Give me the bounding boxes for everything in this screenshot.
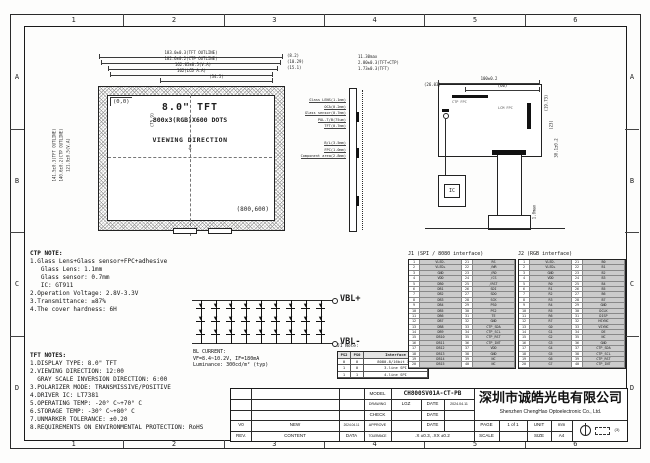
tb-content-label: CONTENT xyxy=(251,431,339,441)
rear-view-ctp-connector xyxy=(452,95,488,98)
pin-number: 20 xyxy=(519,362,530,367)
zone-band-left: ABCD xyxy=(10,26,24,439)
rear-dim-right3: 30.1±0.2 xyxy=(554,138,559,157)
side-view-connector-bump-1 xyxy=(356,112,359,122)
ctp-tail-terminal xyxy=(443,113,449,119)
note-line: 1.Glass Lens+Glass sensor+FPC+adhesive xyxy=(30,258,167,266)
led-icon: ▼ xyxy=(211,329,220,335)
side-view-extension-line xyxy=(362,90,363,230)
led-string: ▼▼▼ xyxy=(256,300,265,344)
side-layer-label: POL.T/B(75um) xyxy=(318,118,346,123)
front-dim-left: (75.9) xyxy=(150,113,155,127)
pin-name: CTP_INT xyxy=(583,362,625,367)
front-dim-left: 140.6±0.2(CTP OUTLINE) xyxy=(59,129,64,182)
led-string: ▼▼▼ xyxy=(226,300,235,344)
pin-number: 20 xyxy=(409,362,420,367)
led-icon: ▼ xyxy=(286,316,295,322)
backlight-circuit: ▼▼▼▼▼▼▼▼▼▼▼▼▼▼▼▼▼▼▼▼▼▼▼▼▼▼▼ xyxy=(192,300,338,344)
led-icon: ▼ xyxy=(286,329,295,335)
led-icon: ▼ xyxy=(241,329,250,335)
front-dim-right: (15.1) xyxy=(287,65,301,70)
side-layer-label: Glass sensor(0.7mm) xyxy=(305,111,346,116)
led-icon: ▼ xyxy=(301,316,310,322)
tb-check-label: CHECK xyxy=(364,410,391,420)
bl-current-line: Luminance: 300cd/m² (typ) xyxy=(193,362,268,369)
zone-number: 3 xyxy=(225,14,325,26)
rear-view-baseline xyxy=(425,228,565,229)
projection-symbol-icon xyxy=(580,425,591,436)
rear-dim-right1: (19.73) xyxy=(544,95,549,112)
zone-number: 6 xyxy=(526,14,625,26)
tb-date-label-2: DATE xyxy=(421,410,444,420)
led-icon: ▼ xyxy=(316,329,325,335)
zone-number: 1 xyxy=(24,14,124,26)
ctp-tail-cap xyxy=(442,109,449,112)
led-string: ▼▼▼ xyxy=(196,300,205,344)
side-layer-label: Component area(2.8mm) xyxy=(301,154,346,159)
zone-number: 1 xyxy=(24,440,124,448)
side-view-connector-bump-3 xyxy=(356,196,359,206)
led-icon: ▼ xyxy=(196,316,205,322)
tb-unit-value: mm xyxy=(551,420,572,430)
note-line: GRAY SCALE INVERSION DIRECTION: 6:00 xyxy=(30,376,203,384)
ctp-tail-wire xyxy=(445,119,446,175)
tb-size-value: A4 xyxy=(551,431,572,441)
led-icon: ▼ xyxy=(196,303,205,309)
led-icon: ▼ xyxy=(256,303,265,309)
note-line: Glass Lens: 1.1mm xyxy=(30,266,167,274)
projection-box-icon xyxy=(595,427,610,435)
note-line: 3.POLARIZER MODE: TRANSMISSIVE/POSITIVE xyxy=(30,384,203,392)
corner-coordinate-label: (800,600) xyxy=(205,206,269,213)
zone-number: 2 xyxy=(124,14,224,26)
pin-number: 40 xyxy=(462,362,473,367)
note-line: 1.DISPLAY TYPE: 8.0" TFT xyxy=(30,360,203,368)
tb-drawing-date: 2024.04.11 xyxy=(444,399,474,409)
tb-data-label: DATA xyxy=(339,431,364,441)
led-icon: ▼ xyxy=(301,303,310,309)
led-icon: ▼ xyxy=(241,316,250,322)
side-dim: 1.73±0.3(TFT) xyxy=(358,66,389,71)
note-line: 8.REQUIREMENTS ON ENVIRONMENTAL PROTECTI… xyxy=(30,424,203,432)
tb-rev-value: V0 xyxy=(231,420,251,430)
title-block: V0 NEW 2024.04.11 REV. CONTENT DATA MODE… xyxy=(230,388,628,442)
ctp-note: CTP NOTE:1.Glass Lens+Glass sensor+FPC+a… xyxy=(30,250,167,314)
side-layer-label: B/L(3.5mm) xyxy=(324,141,346,146)
zone-letter: C xyxy=(10,233,24,337)
note-line: IC: GT911 xyxy=(30,282,167,290)
led-icon: ▼ xyxy=(241,303,250,309)
zone-number: 4 xyxy=(325,14,425,26)
note-title: TFT NOTES: xyxy=(30,352,203,360)
tb-drawing-value: LGZ xyxy=(391,399,421,409)
side-layer-label: TFT(0.7mm) xyxy=(324,124,346,129)
front-view-active-area xyxy=(107,95,275,221)
tb-model-value: CH800SV01A-CT-PB xyxy=(391,389,474,399)
led-icon: ▼ xyxy=(226,316,235,322)
led-string: ▼▼▼ xyxy=(301,300,310,344)
display-size-label: 8.0" TFT xyxy=(107,102,273,113)
viewing-direction-arrow-icon: ⇩ xyxy=(107,143,273,153)
projection-label: (3) xyxy=(609,425,625,434)
tb-rev-label: REV. xyxy=(231,431,251,441)
note-line: 3.Transmittance: ≥87% xyxy=(30,298,167,306)
zone-letter: A xyxy=(10,26,24,130)
note-line: Glass sensor: 0.7mm xyxy=(30,274,167,282)
led-icon: ▼ xyxy=(301,329,310,335)
note-line: 5.OPERATING TEMP: -20° C~+70° C xyxy=(30,400,203,408)
note-line: 2.VIEWING DIRECTION: 12:00 xyxy=(30,368,203,376)
tb-rev-content-value: NEW xyxy=(251,420,339,430)
vbl-plus-terminal xyxy=(332,298,338,304)
tb-unit-label: UNIT xyxy=(527,420,551,430)
led-icon: ▼ xyxy=(271,329,280,335)
tb-date-label-1: DATE xyxy=(421,399,444,409)
rear-view-lcm-connector xyxy=(527,103,531,129)
zone-letter: B xyxy=(10,130,24,234)
front-dim-right: (10.29) xyxy=(287,59,304,64)
rear-dim-bottom: 1.0max xyxy=(532,205,537,219)
rear-dim-left: (26.03) xyxy=(424,82,441,87)
tb-date-label-3: DATE xyxy=(421,420,444,430)
front-dim-left: 121.9±0.5(V.A) xyxy=(66,138,71,172)
tb-page-value: 1 of 1 xyxy=(499,420,527,430)
j2-table-title: J2 (RGB interface) xyxy=(518,251,572,257)
j1-note-cell: 4-line SPI xyxy=(364,372,428,379)
note-title: CTP NOTE: xyxy=(30,250,167,258)
led-icon: ▼ xyxy=(196,329,205,335)
led-icon: ▼ xyxy=(256,316,265,322)
lcm-fpc-label: LCM FPC xyxy=(498,106,513,110)
zone-band-right: ABCD xyxy=(625,26,639,439)
company-name-en: Shenzhen ChengHao Optoelectronic Co., Lt… xyxy=(474,408,627,416)
zone-number: 5 xyxy=(425,14,525,26)
bottom-tab-left xyxy=(173,228,197,234)
lcm-fpc-tail xyxy=(497,155,522,216)
tb-drawing-label: DRAWING xyxy=(364,399,391,409)
tb-approve-label: APPROVE xyxy=(364,420,391,430)
tb-tolerance-label: TOLERANCE xyxy=(364,431,391,441)
zone-band-top: 123456 xyxy=(24,14,625,26)
j1-table-title: J1 (SPI / 8080 interface) xyxy=(408,251,483,257)
note-line: 2.Operation Voltage: 2.8V-3.3V xyxy=(30,290,167,298)
tb-size-label: SIZE xyxy=(527,431,551,441)
pin-name: NC xyxy=(473,362,515,367)
j1-note-cell: 1 xyxy=(351,372,364,379)
side-layer-label: OCA(0.2mm) xyxy=(324,105,346,110)
front-dim-top: (34.5) xyxy=(160,74,273,82)
led-icon: ▼ xyxy=(226,329,235,335)
vbl-plus-label: VBL+ xyxy=(340,294,360,304)
backlight-current-note: BL CURRENT:VF=8.4~10.2V, IF=180mALuminan… xyxy=(193,349,268,369)
tb-rev-date: 2024.04.11 xyxy=(339,420,364,430)
ctp-fpc-label: CTP FPC xyxy=(452,100,467,104)
tb-tolerance-value: .X ±0.3, .XX ±0.2 xyxy=(391,431,474,441)
tb-scale-label: SCALE xyxy=(474,431,499,441)
note-line: 4.DRIVER IC: LT7381 xyxy=(30,392,203,400)
note-line: 7.UNMARKER TOLERANCE: ±0.20 xyxy=(30,416,203,424)
led-icon: ▼ xyxy=(271,303,280,309)
company-name-cn: 深圳市诚皓光电有限公司 xyxy=(474,390,627,407)
zone-number: 2 xyxy=(124,440,224,448)
j2-pin-table: 1VLED-21B02VLED+22B13GND23B24VDD24B35R02… xyxy=(518,259,626,369)
side-view-profile xyxy=(349,88,357,232)
led-icon: ▼ xyxy=(316,316,325,322)
led-string: ▼▼▼ xyxy=(241,300,250,344)
led-icon: ▼ xyxy=(226,303,235,309)
j1-note-cell: 1 xyxy=(338,372,351,379)
side-view-connector-bump-2 xyxy=(356,148,359,158)
led-string: ▼▼▼ xyxy=(271,300,280,344)
j1-note-title: J1 Note: xyxy=(337,344,359,349)
resolution-label: 800x3(RGB)X600 DOTS xyxy=(107,116,273,124)
zone-letter: D xyxy=(10,337,24,440)
zone-letter: A xyxy=(625,26,639,130)
front-dim-right: (8.2) xyxy=(287,53,299,58)
rear-dim-inner: (60) xyxy=(465,83,540,91)
tb-page-label: PAGE xyxy=(474,420,499,430)
note-line: 6.STORAGE TEMP: -30° C~+80° C xyxy=(30,408,203,416)
zone-letter: B xyxy=(625,130,639,234)
led-icon: ▼ xyxy=(286,303,295,309)
pin-name: DB15 xyxy=(420,362,462,367)
pin-number: 40 xyxy=(572,362,583,367)
led-string: ▼▼▼ xyxy=(286,300,295,344)
bottom-tab-right xyxy=(208,228,232,234)
projection-symbol-line xyxy=(585,423,586,436)
front-dim-left: 141.5±0.3(TFT OUTLINE) xyxy=(52,129,57,182)
tft-notes: TFT NOTES:1.DISPLAY TYPE: 8.0" TFT2.VIEW… xyxy=(30,352,203,432)
led-icon: ▼ xyxy=(316,303,325,309)
datasheet-drawing-sheet: 123456 123456 ABCD ABCD (0,0) 8.0" TFT 8… xyxy=(0,0,650,463)
side-layer-label: Glass LENS(1.1mm) xyxy=(309,98,346,103)
pin-name: G7 xyxy=(530,362,572,367)
touch-ic-box: IC xyxy=(444,184,460,198)
j1-pin-table: 1VLED-21RS2VLED+22/WR3GND23/RD4VDD24/CS5… xyxy=(408,259,516,369)
rear-dim-right2: (23) xyxy=(549,120,554,130)
side-dim: 2.80±0.3(TFT+CTP) xyxy=(358,60,399,65)
led-string: ▼▼▼ xyxy=(211,300,220,344)
led-icon: ▼ xyxy=(256,329,265,335)
led-icon: ▼ xyxy=(211,316,220,322)
side-dim: 11.30max xyxy=(358,54,377,59)
note-line: 4.The cover hardness: 6H xyxy=(30,306,167,314)
led-icon: ▼ xyxy=(211,303,220,309)
zone-letter: C xyxy=(625,233,639,337)
side-layer-label: FPC(1.0mm) xyxy=(324,148,346,153)
tb-model-label: MODEL xyxy=(364,389,391,399)
led-icon: ▼ xyxy=(271,316,280,322)
led-string: ▼▼▼ xyxy=(316,300,325,344)
tb-line xyxy=(572,420,573,441)
